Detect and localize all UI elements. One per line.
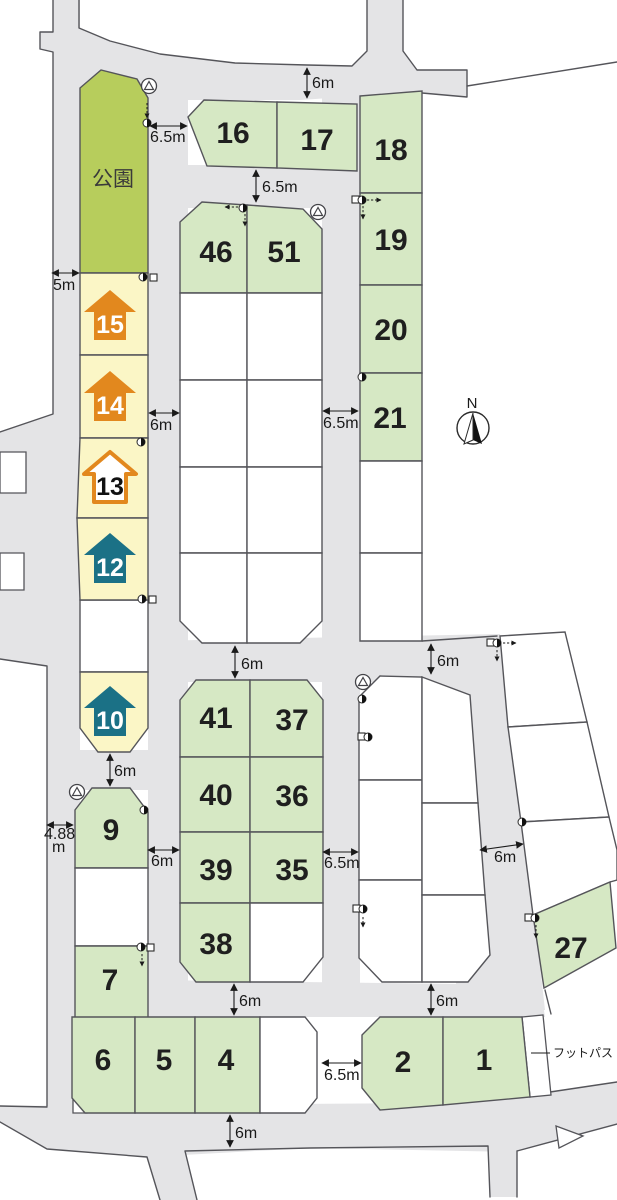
lot-number: 4	[218, 1044, 235, 1077]
lot-number: 6	[95, 1044, 112, 1077]
dimension-label: 6m	[494, 849, 516, 866]
lot-number: 2	[395, 1046, 412, 1079]
lot-number: 5	[156, 1044, 173, 1077]
lot-unlabeled	[360, 461, 422, 553]
dimension-label: 6m	[150, 417, 172, 434]
dimension-label: 6m	[436, 993, 458, 1010]
lot-number: 20	[374, 314, 407, 347]
hydrant-icon	[142, 79, 157, 94]
lot-unlabeled	[180, 293, 247, 380]
road-surface	[148, 165, 360, 208]
hydrant-icon	[70, 785, 85, 800]
survey-marker-icon	[140, 806, 148, 814]
lot-unlabeled	[508, 722, 609, 822]
north-needle-light	[464, 413, 473, 444]
dimension-label: 6m	[437, 653, 459, 670]
lot-number: 9	[103, 814, 120, 847]
lot-unlabeled	[500, 632, 587, 727]
lot-number: 17	[300, 124, 333, 157]
lot-unlabeled	[247, 553, 322, 643]
site-plan-map: 公園 1617181920214651413740363935382797654…	[0, 0, 617, 1200]
lot-unlabeled	[360, 553, 422, 641]
dimension-label: m	[52, 839, 65, 856]
lot-unlabeled	[260, 1017, 317, 1113]
lot-number: 51	[267, 236, 300, 269]
road-surface	[147, 1151, 197, 1200]
lot-number: 36	[275, 780, 308, 813]
road-edge	[0, 0, 53, 432]
lot-number: 27	[554, 932, 587, 965]
lot-number: 16	[216, 117, 249, 150]
lot-number: 19	[374, 224, 407, 257]
lot-number: 38	[199, 928, 232, 961]
lot-number: 39	[199, 854, 232, 887]
park-area: 公園	[80, 70, 148, 273]
lot-number: 41	[199, 702, 232, 735]
road-edge	[0, 659, 47, 1107]
dimension-label: 6m	[235, 1125, 257, 1142]
lot-number: 1	[476, 1044, 493, 1077]
lot-number: 21	[373, 402, 406, 435]
lot-unlabeled	[180, 553, 247, 643]
dimension-label: 6m	[312, 75, 334, 92]
lot-unlabeled	[180, 380, 247, 467]
dimension-label: 6m	[151, 853, 173, 870]
lot-unlabeled	[75, 868, 148, 946]
lot-number: 37	[275, 704, 308, 737]
north-arrow: N	[457, 395, 489, 444]
north-needle-dark	[473, 413, 482, 444]
dimension-label: 6m	[239, 993, 261, 1010]
plot-map-canvas: 公園 1617181920214651413740363935382797654…	[0, 0, 617, 1200]
road-edge	[467, 62, 617, 86]
north-label: N	[467, 395, 478, 412]
survey-marker-icon	[358, 373, 366, 381]
lot-unlabeled	[422, 677, 478, 803]
dimension-label: 6m	[114, 763, 136, 780]
house-lot-number: 10	[96, 707, 124, 735]
house-lot-number: 14	[96, 392, 124, 420]
dimension-label: 6.5m	[262, 179, 298, 196]
survey-marker-icon	[358, 695, 366, 703]
house-lot-number: 12	[96, 554, 124, 582]
lot-number: 35	[275, 854, 308, 887]
white-patch	[0, 553, 24, 590]
lot-number: 7	[102, 964, 119, 997]
survey-marker-icon	[358, 733, 372, 741]
lot-number: 18	[374, 134, 407, 167]
park-label: 公園	[92, 167, 134, 191]
survey-marker-icon	[518, 818, 526, 826]
hydrant-icon	[356, 675, 371, 690]
hydrant-icon	[311, 205, 326, 220]
house-lot-number: 13	[96, 473, 124, 501]
dimension-label: 6.5m	[324, 1067, 360, 1084]
road-surface	[322, 676, 360, 1017]
road-surface	[488, 1146, 517, 1197]
house-lots: 1514131210	[77, 273, 148, 752]
lot-unlabeled	[80, 600, 148, 672]
dimension-label: 6.5m	[323, 415, 359, 432]
lot-number: 46	[199, 236, 232, 269]
dimension-label: 5m	[53, 277, 75, 294]
house-lot-number: 15	[96, 311, 124, 339]
road-edge	[545, 990, 551, 1014]
dimension-label: 6m	[241, 656, 263, 673]
lot-unlabeled	[250, 903, 323, 982]
lot-unlabeled	[180, 467, 247, 553]
footpath-label: フットパス	[553, 1046, 613, 1060]
lot-unlabeled	[359, 880, 422, 982]
lot-unlabeled	[422, 803, 485, 895]
dimension-label: 6.5m	[324, 855, 360, 872]
white-patch	[0, 452, 26, 493]
lot-unlabeled	[247, 380, 322, 467]
lot-unlabeled	[359, 780, 422, 880]
lot-unlabeled	[247, 293, 322, 380]
lot-unlabeled	[247, 467, 322, 553]
lot-unlabeled	[359, 676, 422, 780]
survey-marker-icon	[137, 438, 145, 446]
dimension-label: 6.5m	[150, 129, 186, 146]
lot-number: 40	[199, 779, 232, 812]
